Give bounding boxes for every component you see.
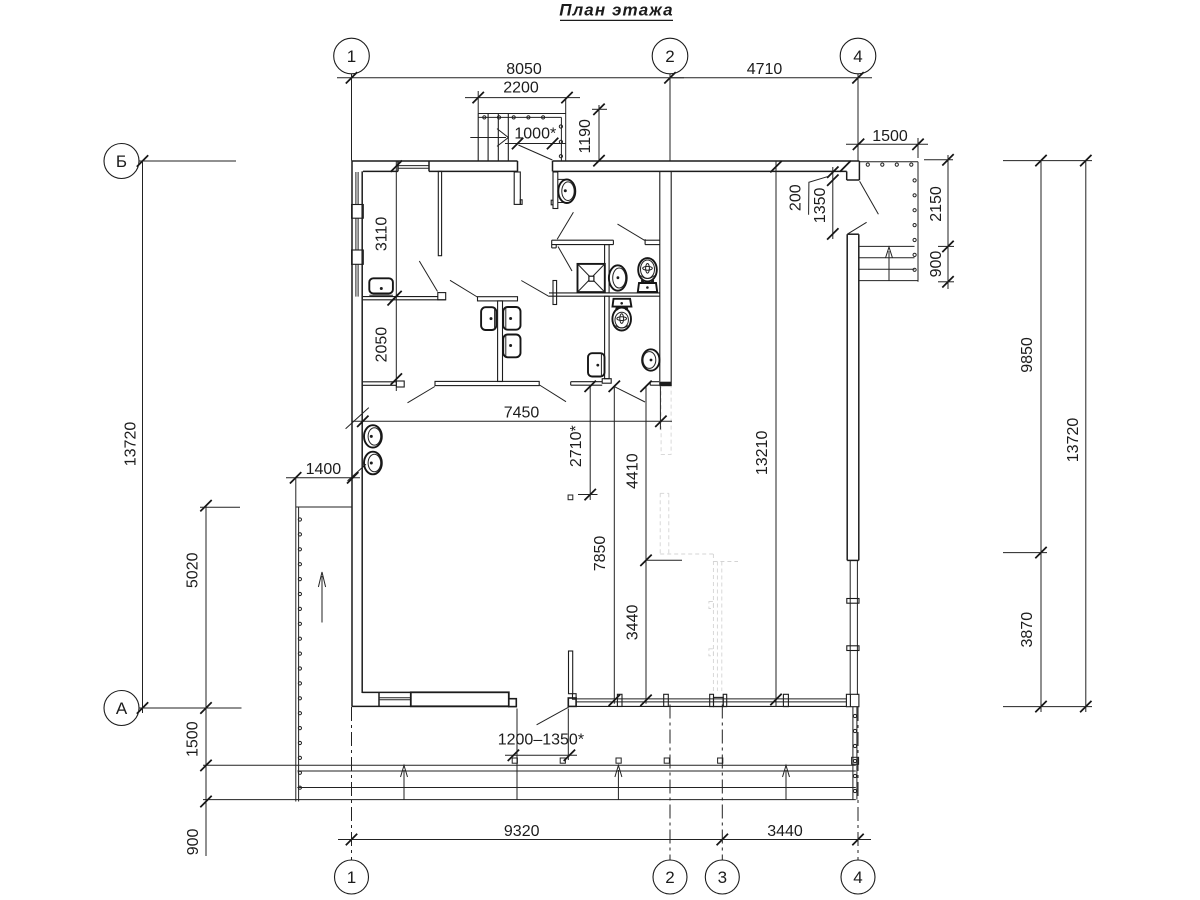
svg-text:9320: 9320 <box>504 823 540 840</box>
svg-text:1000*: 1000* <box>514 126 556 143</box>
svg-text:1500: 1500 <box>872 128 908 145</box>
svg-text:1: 1 <box>347 868 356 887</box>
svg-text:1: 1 <box>347 47 356 66</box>
svg-text:7450: 7450 <box>504 404 540 421</box>
svg-text:План этажа: План этажа <box>559 1 673 20</box>
svg-text:4410: 4410 <box>624 453 641 489</box>
svg-text:200: 200 <box>787 184 804 211</box>
svg-text:7850: 7850 <box>592 536 609 572</box>
svg-text:3440: 3440 <box>767 823 803 840</box>
svg-text:3: 3 <box>718 868 727 887</box>
svg-text:2710*: 2710* <box>568 425 585 467</box>
svg-text:4: 4 <box>853 47 862 66</box>
svg-text:13720: 13720 <box>1065 418 1082 463</box>
svg-text:4: 4 <box>853 868 862 887</box>
svg-text:8050: 8050 <box>506 61 542 78</box>
svg-text:А: А <box>116 699 128 718</box>
svg-text:2150: 2150 <box>928 186 945 222</box>
svg-text:13720: 13720 <box>123 422 140 467</box>
svg-text:900: 900 <box>185 828 202 855</box>
svg-text:5020: 5020 <box>185 552 202 588</box>
svg-text:3110: 3110 <box>374 217 391 252</box>
svg-text:2: 2 <box>665 47 674 66</box>
svg-text:1350: 1350 <box>812 188 829 224</box>
svg-text:3870: 3870 <box>1019 612 1036 648</box>
svg-text:1400: 1400 <box>306 461 342 478</box>
svg-text:1500: 1500 <box>185 721 202 757</box>
svg-text:900: 900 <box>928 251 945 278</box>
svg-text:2200: 2200 <box>503 79 539 96</box>
svg-text:4710: 4710 <box>747 61 783 78</box>
svg-text:1190: 1190 <box>577 119 594 154</box>
svg-text:2: 2 <box>665 868 674 887</box>
svg-text:3440: 3440 <box>624 605 641 641</box>
svg-text:9850: 9850 <box>1019 337 1036 373</box>
svg-text:13210: 13210 <box>754 431 771 476</box>
svg-text:2050: 2050 <box>374 327 391 363</box>
svg-text:Б: Б <box>116 152 127 171</box>
svg-text:1200–1350*: 1200–1350* <box>498 732 584 749</box>
